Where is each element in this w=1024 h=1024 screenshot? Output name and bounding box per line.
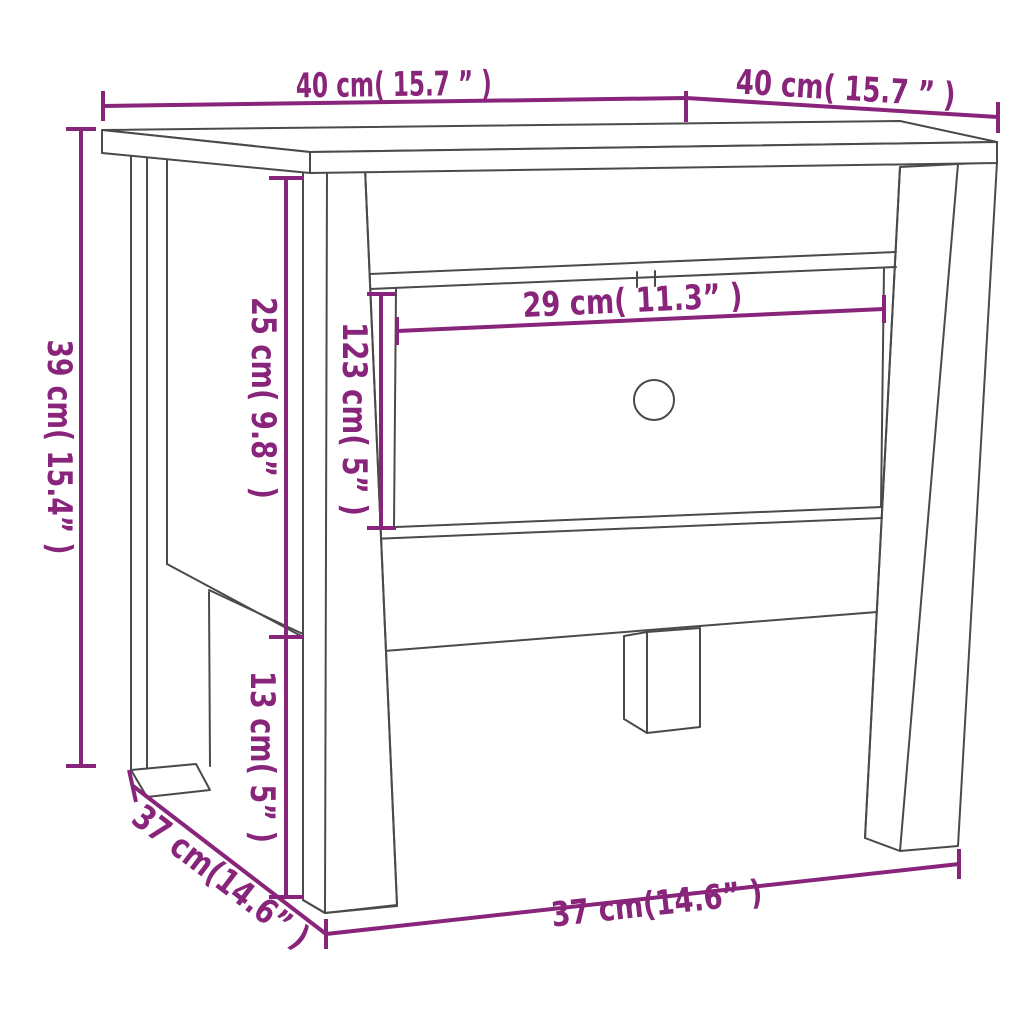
dimension-label-leg-clearance: 13 cm( 5” ) <box>242 671 282 843</box>
front-left-leg <box>303 168 397 913</box>
dimension-drawer-height: 123 cm( 5” ) <box>334 294 396 528</box>
dimension-label-base-width: 37 cm(14.6” ) <box>549 873 764 936</box>
product-dimension-diagram: 40 cm( 15.7 ” ) 40 cm( 15.7 ” ) 39 cm( 1… <box>0 0 1024 1024</box>
dimension-annotations: 40 cm( 15.7 ” ) 40 cm( 15.7 ” ) 39 cm( 1… <box>39 62 998 957</box>
drawer-knob <box>634 380 674 420</box>
dimension-label-base-depth: 37 cm(14.6” ) <box>124 797 317 958</box>
dimension-label-drawer-height: 123 cm( 5” ) <box>334 322 374 516</box>
dimension-label-top-width: 40 cm( 15.7 ” ) <box>296 64 493 107</box>
back-left-leg <box>131 155 210 797</box>
dimension-base-width: 37 cm(14.6” ) <box>326 849 959 949</box>
dimension-leg-clearance: 13 cm( 5” ) <box>242 637 304 897</box>
dimension-total-height: 39 cm( 15.4” ) <box>39 129 96 766</box>
dimension-top-width: 40 cm( 15.7 ” ) <box>103 64 686 122</box>
front-right-leg <box>865 162 997 851</box>
dimension-label-apron-height: 25 cm( 9.8” ) <box>243 297 283 499</box>
tabletop <box>102 121 997 173</box>
dimension-drawer-width: 29 cm( 11.3” ) <box>397 276 884 345</box>
dimension-label-total-height: 39 cm( 15.4” ) <box>39 340 79 555</box>
dimension-base-depth: 37 cm(14.6” ) <box>124 770 326 958</box>
dimension-apron-height: 25 cm( 9.8” ) <box>243 178 304 637</box>
back-right-leg <box>624 628 700 733</box>
furniture-outline <box>102 121 997 913</box>
dimension-label-top-depth: 40 cm( 15.7 ” ) <box>735 62 957 115</box>
side-table-diagram: 40 cm( 15.7 ” ) 40 cm( 15.7 ” ) 39 cm( 1… <box>0 0 1024 1024</box>
left-apron <box>167 564 303 637</box>
